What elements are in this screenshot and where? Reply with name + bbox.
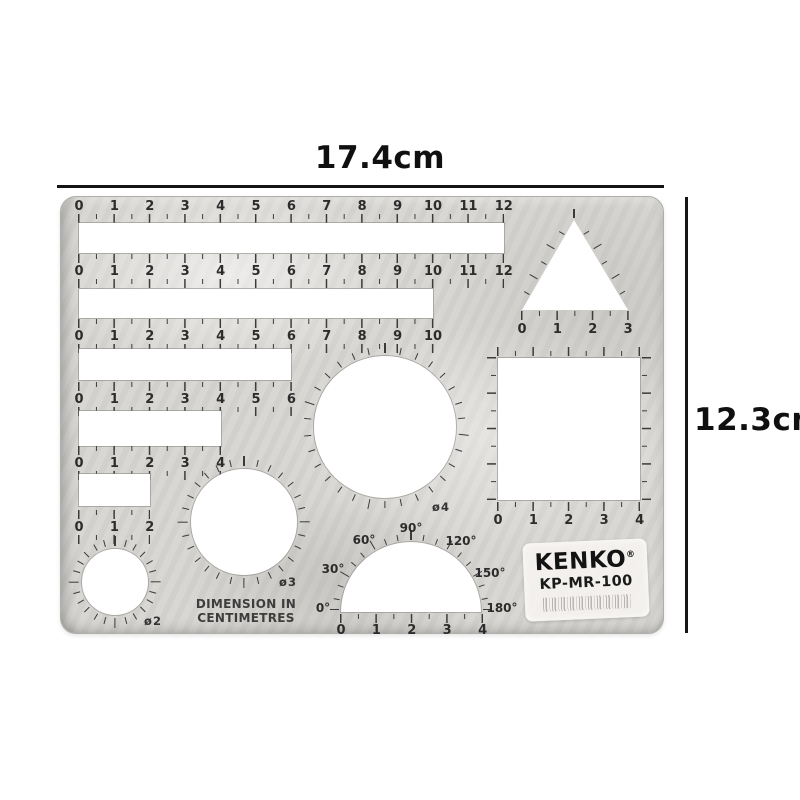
ruler-3-number: 0 [68,330,90,343]
triangle-cutout [522,220,628,310]
radial-tick [367,499,370,509]
ruler-4-number: 2 [139,393,161,406]
ruler-4-number: 5 [245,393,267,406]
radial-tick [449,463,456,468]
square-scale-number: 3 [593,514,615,527]
radial-tick [114,618,115,628]
radial-tick [278,472,283,478]
triangle-side-tick [524,291,529,295]
radial-tick [73,591,80,594]
ruler-1-number: 4 [210,200,232,213]
radial-tick [124,617,127,624]
degree-label: 120° [445,534,476,548]
triangle-side-tick [620,291,625,295]
circle-cutout-o3 [191,469,297,575]
radial-tick [73,570,80,573]
ruler-2-number: 7 [316,265,338,278]
radial-tick [337,486,342,492]
tick-marks [78,254,504,263]
ruler-3-number: 3 [174,330,196,343]
ruler-1-number: 12 [493,200,515,213]
ruler-slot-6cm [79,349,291,380]
height-dimension-line [685,197,688,633]
ruler-3-number: 2 [139,330,161,343]
radial-tick [384,501,385,508]
square-cutout [498,358,640,500]
radial-tick [268,465,272,472]
radial-tick [314,463,321,468]
tick-marks [78,446,221,455]
triangle-side-tick [602,261,607,265]
ruler-1-number: 5 [245,200,267,213]
tick-marks [78,214,504,223]
radial-tick [459,434,469,436]
ruler-4-number: 6 [280,393,302,406]
brand-name: KENKO® [523,547,648,575]
triangle-side-tick [593,244,601,250]
square-scale-number: 0 [487,514,509,527]
radial-tick [360,552,365,557]
radial-tick [337,585,343,588]
radial-tick [440,372,446,378]
radial-tick [298,534,305,537]
radial-tick [150,591,157,594]
ruler-2-number: 4 [210,265,232,278]
radial-tick [132,613,137,620]
radial-tick [146,599,153,604]
tick-marks [487,357,496,500]
ruler-1-number: 9 [387,200,409,213]
radial-tick [351,353,355,360]
radial-tick [194,482,200,487]
triangle-scale-number: 3 [617,323,639,336]
protractor-scale-number: 2 [401,624,423,637]
radial-tick [182,507,189,510]
radial-tick [304,418,311,420]
ruler-1-number: 6 [280,200,302,213]
radial-tick [351,494,355,501]
ruler-1-number: 10 [422,200,444,213]
ruler-1-number: 2 [139,200,161,213]
ruler-slot-12cm [79,223,504,253]
brand-label: KENKO® KP-MR-100 [522,538,649,621]
protractor-scale-number: 0 [330,624,352,637]
square-scale-number: 2 [558,514,580,527]
ruler-2-number: 2 [139,265,161,278]
stencil-template: DIMENSION IN CENTIMETRES KENKO® KP-MR-10… [60,196,664,634]
radial-tick [314,386,321,391]
radial-tick [351,561,356,566]
radial-tick [298,507,305,510]
radial-tick [400,499,403,506]
square-scale-number: 4 [629,514,651,527]
width-dimension-label: 17.4cm [290,140,470,176]
radial-tick [287,482,293,487]
radial-tick [256,576,259,583]
radial-tick [300,521,310,522]
ruler-3-number: 1 [103,330,125,343]
tick-marks [340,614,483,623]
radial-tick [187,546,194,550]
triangle-side-tick [611,274,619,280]
ruler-1-number: 1 [103,200,125,213]
radial-tick [384,343,385,353]
ruler-6-number: 0 [68,521,90,534]
ruler-2-number: 11 [457,265,479,278]
radial-tick [455,449,462,452]
triangle-side-tick [584,231,589,235]
triangle-scale-number: 2 [582,323,604,336]
radial-tick [84,607,90,613]
ruler-2-number: 10 [422,265,444,278]
radial-tick [243,578,244,588]
ruler-3-number: 5 [245,330,267,343]
tick-marks [642,357,651,500]
ruler-1-number: 7 [316,200,338,213]
radial-tick [146,560,153,565]
ruler-3-number: 9 [387,330,409,343]
radial-tick [294,546,301,550]
radial-tick [216,572,220,579]
radial-tick [459,418,466,420]
tick-marks [521,311,629,320]
ruler-2-number: 8 [351,265,373,278]
circle-cutout-o4 [314,356,456,498]
ruler-5-number: 3 [174,457,196,470]
ruler-5-number: 2 [139,457,161,470]
registered-mark-icon: ® [626,550,636,560]
radial-tick [337,361,342,367]
ruler-2-number: 5 [245,265,267,278]
radial-tick [256,460,259,467]
ruler-5-number: 0 [68,457,90,470]
radial-tick [84,551,90,557]
radial-tick [243,456,244,466]
width-dimension-line [57,185,664,188]
radial-tick [268,572,272,579]
tick-marks [78,279,504,288]
ruler-1-number: 11 [457,200,479,213]
radial-tick [449,386,456,391]
ruler-4-number: 4 [210,393,232,406]
radial-tick [457,552,462,557]
radial-tick [204,565,209,571]
ruler-1-number: 3 [174,200,196,213]
product-photo: 17.4cm 12.3cm DIMENSION IN CENTIMETRES K… [0,0,800,800]
degree-label: 180° [486,601,517,615]
radial-tick [440,476,446,482]
ruler-3-number: 6 [280,330,302,343]
radial-tick [334,598,340,600]
radial-tick [69,581,79,582]
degree-label: 30° [322,562,345,576]
ruler-5-number: 4 [210,457,232,470]
radial-tick [287,556,293,561]
ruler-2-number: 0 [68,265,90,278]
ruler-slot-2cm [79,474,150,506]
ruler-slot-4cm [79,411,221,446]
radial-tick [308,449,315,452]
ruler-2-number: 1 [103,265,125,278]
ruler-1-number: 8 [351,200,373,213]
radial-tick [414,353,418,360]
radial-tick [93,613,98,620]
radial-tick [132,544,137,551]
radial-tick [182,534,189,537]
protractor-scale-number: 3 [436,624,458,637]
ruler-6-number: 1 [103,521,125,534]
ruler-2-number: 6 [280,265,302,278]
ruler-2-number: 12 [493,265,515,278]
radial-tick [324,476,330,482]
radial-tick [384,538,387,544]
radial-tick [482,598,488,600]
radial-tick [150,570,157,573]
circle-cutout-o2 [82,549,148,615]
ruler-4-number: 3 [174,393,196,406]
radial-tick [435,538,438,544]
tick-marks [78,510,150,519]
ruler-3-number: 10 [422,330,444,343]
triangle-scale-number: 0 [511,323,533,336]
radial-tick [428,486,433,492]
ruler-1-number: 0 [68,200,90,213]
radial-tick [114,536,115,546]
radial-tick [305,400,315,404]
degree-label: 90° [400,521,423,535]
triangle-apex-tick [573,209,574,218]
radial-tick [397,535,399,541]
circle-diameter-label: ø3 [279,575,297,589]
protractor-scale-number: 1 [365,624,387,637]
radial-tick [140,551,146,557]
triangle-scale-number: 1 [546,323,568,336]
radial-tick [103,617,106,624]
radial-tick [77,599,84,604]
ruler-2-number: 9 [387,265,409,278]
triangle-side-tick [529,274,537,280]
radial-tick [414,494,418,501]
radial-tick [304,434,311,436]
ruler-3-number: 7 [316,330,338,343]
triangle-side-tick [541,261,546,265]
dimension-note-line1: DIMENSION IN [185,597,307,611]
protractor-baseline-tick-left [330,609,339,610]
radial-tick [466,561,471,566]
radial-tick [294,494,301,498]
radial-tick [229,576,232,583]
radial-tick [93,544,98,551]
radial-tick [478,585,484,588]
radial-tick [423,535,425,541]
triangle-side-tick [547,244,555,250]
square-scale-number: 1 [522,514,544,527]
degree-label: 0° [316,601,330,615]
dimension-note-line2: CENTIMETRES [185,611,307,625]
circle-diameter-label: ø4 [432,500,450,514]
radial-tick [455,401,462,404]
ruler-5-number: 1 [103,457,125,470]
ruler-3-number: 8 [351,330,373,343]
ruler-2-number: 3 [174,265,196,278]
radial-tick [194,556,200,561]
ruler-slot-10cm [79,289,433,318]
degree-label: 60° [353,533,376,547]
tick-marks [497,502,640,511]
radial-tick [278,565,283,571]
degree-label: 150° [474,566,505,580]
barcode [543,594,632,612]
tick-marks [78,382,292,391]
ruler-4-number: 1 [103,393,125,406]
ruler-6-number: 2 [139,521,161,534]
protractor-scale-number: 4 [472,624,494,637]
radial-tick [140,607,146,613]
radial-tick [77,560,84,565]
tick-marks [497,347,640,356]
height-dimension-label: 12.3cm [694,402,800,438]
radial-tick [187,494,194,498]
tick-marks [78,319,433,328]
triangle-side-tick [558,231,563,235]
radial-tick [229,460,232,467]
circle-diameter-label: ø2 [144,614,162,628]
ruler-3-number: 4 [210,330,232,343]
radial-tick [428,361,433,367]
radial-tick [151,581,161,582]
dimension-note: DIMENSION IN CENTIMETRES [185,597,307,625]
radial-tick [178,521,188,522]
ruler-4-number: 0 [68,393,90,406]
radial-tick [324,372,330,378]
